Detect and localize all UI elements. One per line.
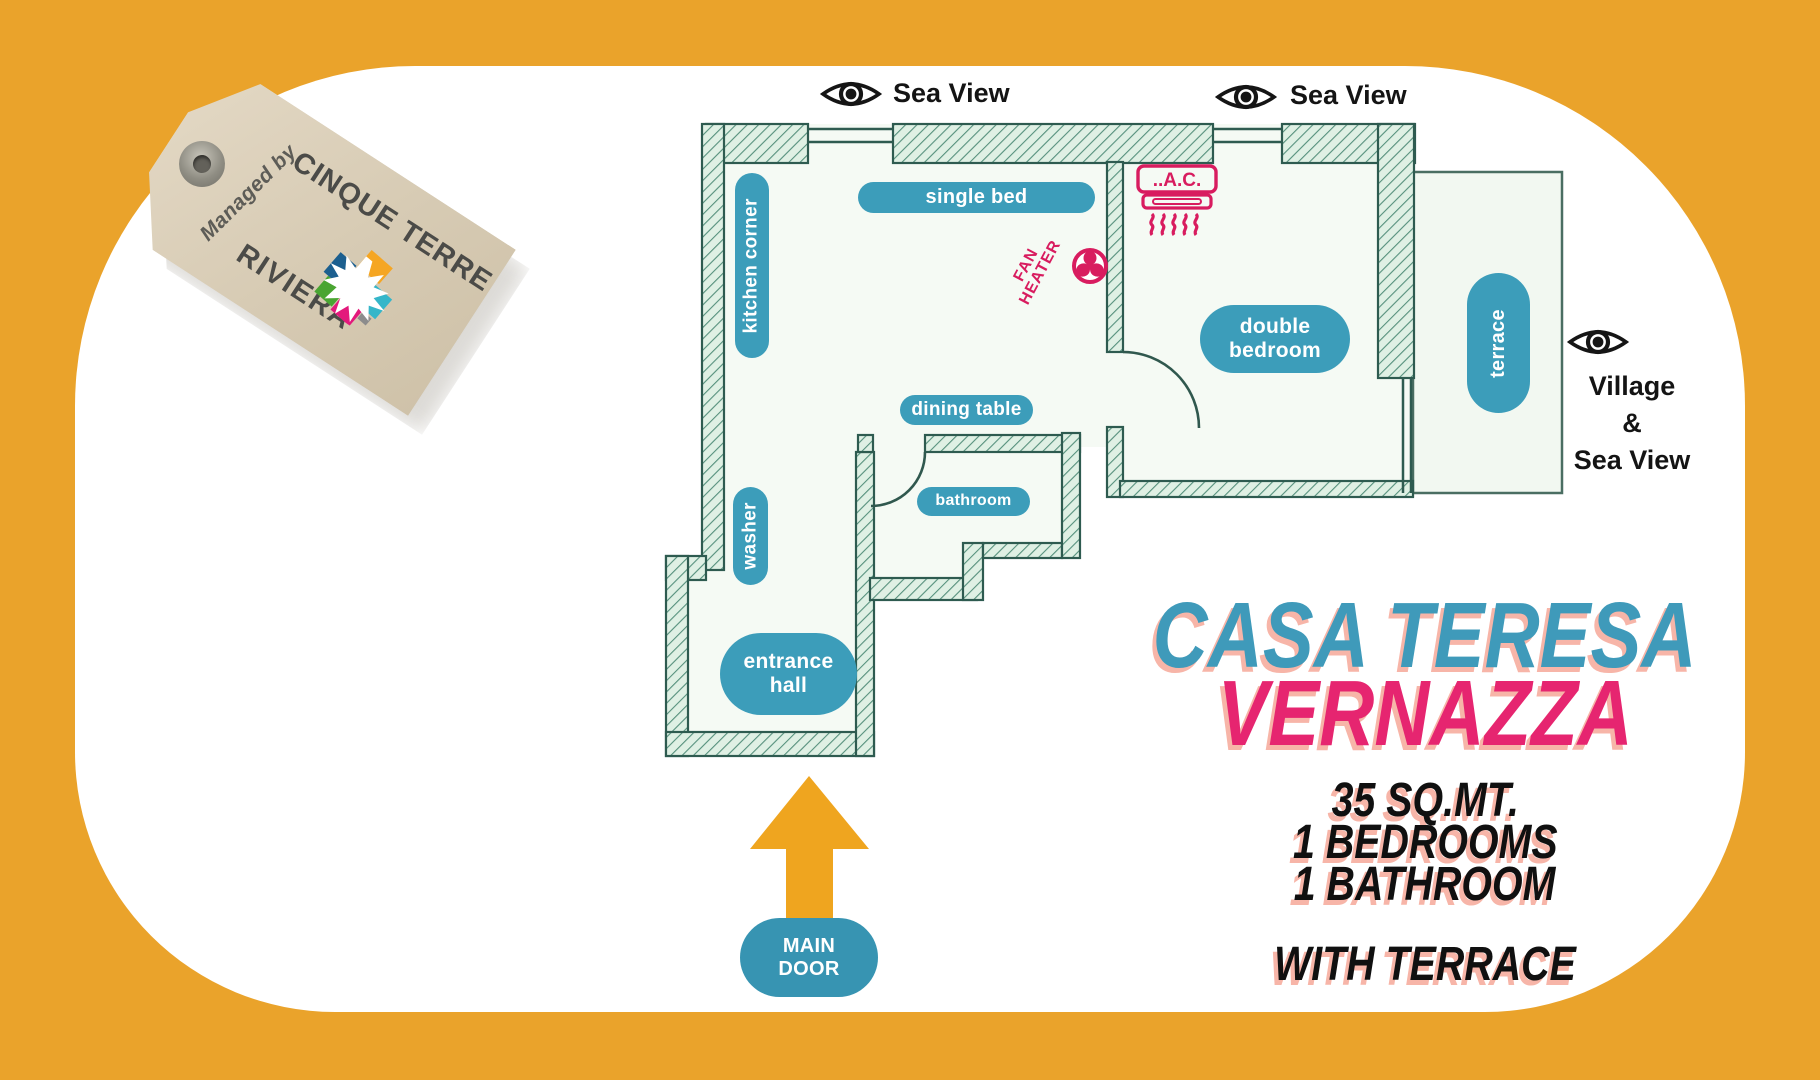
terrace-label: terrace [1487,309,1510,378]
room-pill-single-bed: single bed [858,182,1095,213]
listing-extra: WITH TERRACE [1274,944,1576,986]
village-line1: Village [1537,368,1727,405]
fan-icon [1074,250,1106,282]
double-bedroom-label-line1: double [1240,315,1311,339]
main-door-label-line1: MAIN [783,935,835,958]
listing-headline: CASA TERESA VERNAZZA 35 SQ.MT. 1 BEDROOM… [1050,596,1800,986]
kitchen-corner-label: kitchen corner [741,198,763,333]
listing-bathroom: 1 BATHROOM [1294,864,1556,906]
entrance-hall-label-line2: hall [770,674,807,698]
room-pill-dining-table: dining table [900,395,1033,425]
tag-grommet [170,132,234,196]
listing-location: VERNAZZA [1217,674,1632,752]
sea-view-left-text: Sea View [893,78,1010,109]
bathroom-label: bathroom [935,492,1011,510]
entrance-hall-label-line1: entrance [744,650,834,674]
sea-view-label-left: Sea View [893,78,1010,109]
village-line2: & [1537,405,1727,442]
eye-icon-sea-view-right [1218,87,1274,107]
village-sea-view-label: Village & Sea View [1537,368,1727,479]
village-line3: Sea View [1537,442,1727,479]
washer-label: washer [740,502,762,569]
room-pill-washer: washer [733,487,768,585]
ac-label: ..A.C. [1153,170,1202,191]
sea-view-label-right: Sea View [1290,80,1407,111]
sea-view-right-text: Sea View [1290,80,1407,111]
room-pill-terrace: terrace [1467,273,1530,413]
double-bedroom-label-line2: bedroom [1229,339,1321,363]
main-door-label-line2: DOOR [778,958,839,981]
poster-canvas: ..A.C. FAN HEATER [0,0,1820,1080]
room-pill-entrance-hall: entrance hall [720,633,857,715]
single-bed-label: single bed [926,186,1028,209]
eye-icon-village [1570,332,1626,352]
room-pill-bathroom: bathroom [917,487,1030,516]
main-door-pill: MAIN DOOR [740,918,878,997]
eye-icon-sea-view-left [823,84,879,104]
room-pill-double-bedroom: double bedroom [1200,305,1350,373]
dining-table-label: dining table [911,399,1021,421]
up-arrow-icon [750,776,869,918]
room-pill-kitchen-corner: kitchen corner [735,173,769,358]
